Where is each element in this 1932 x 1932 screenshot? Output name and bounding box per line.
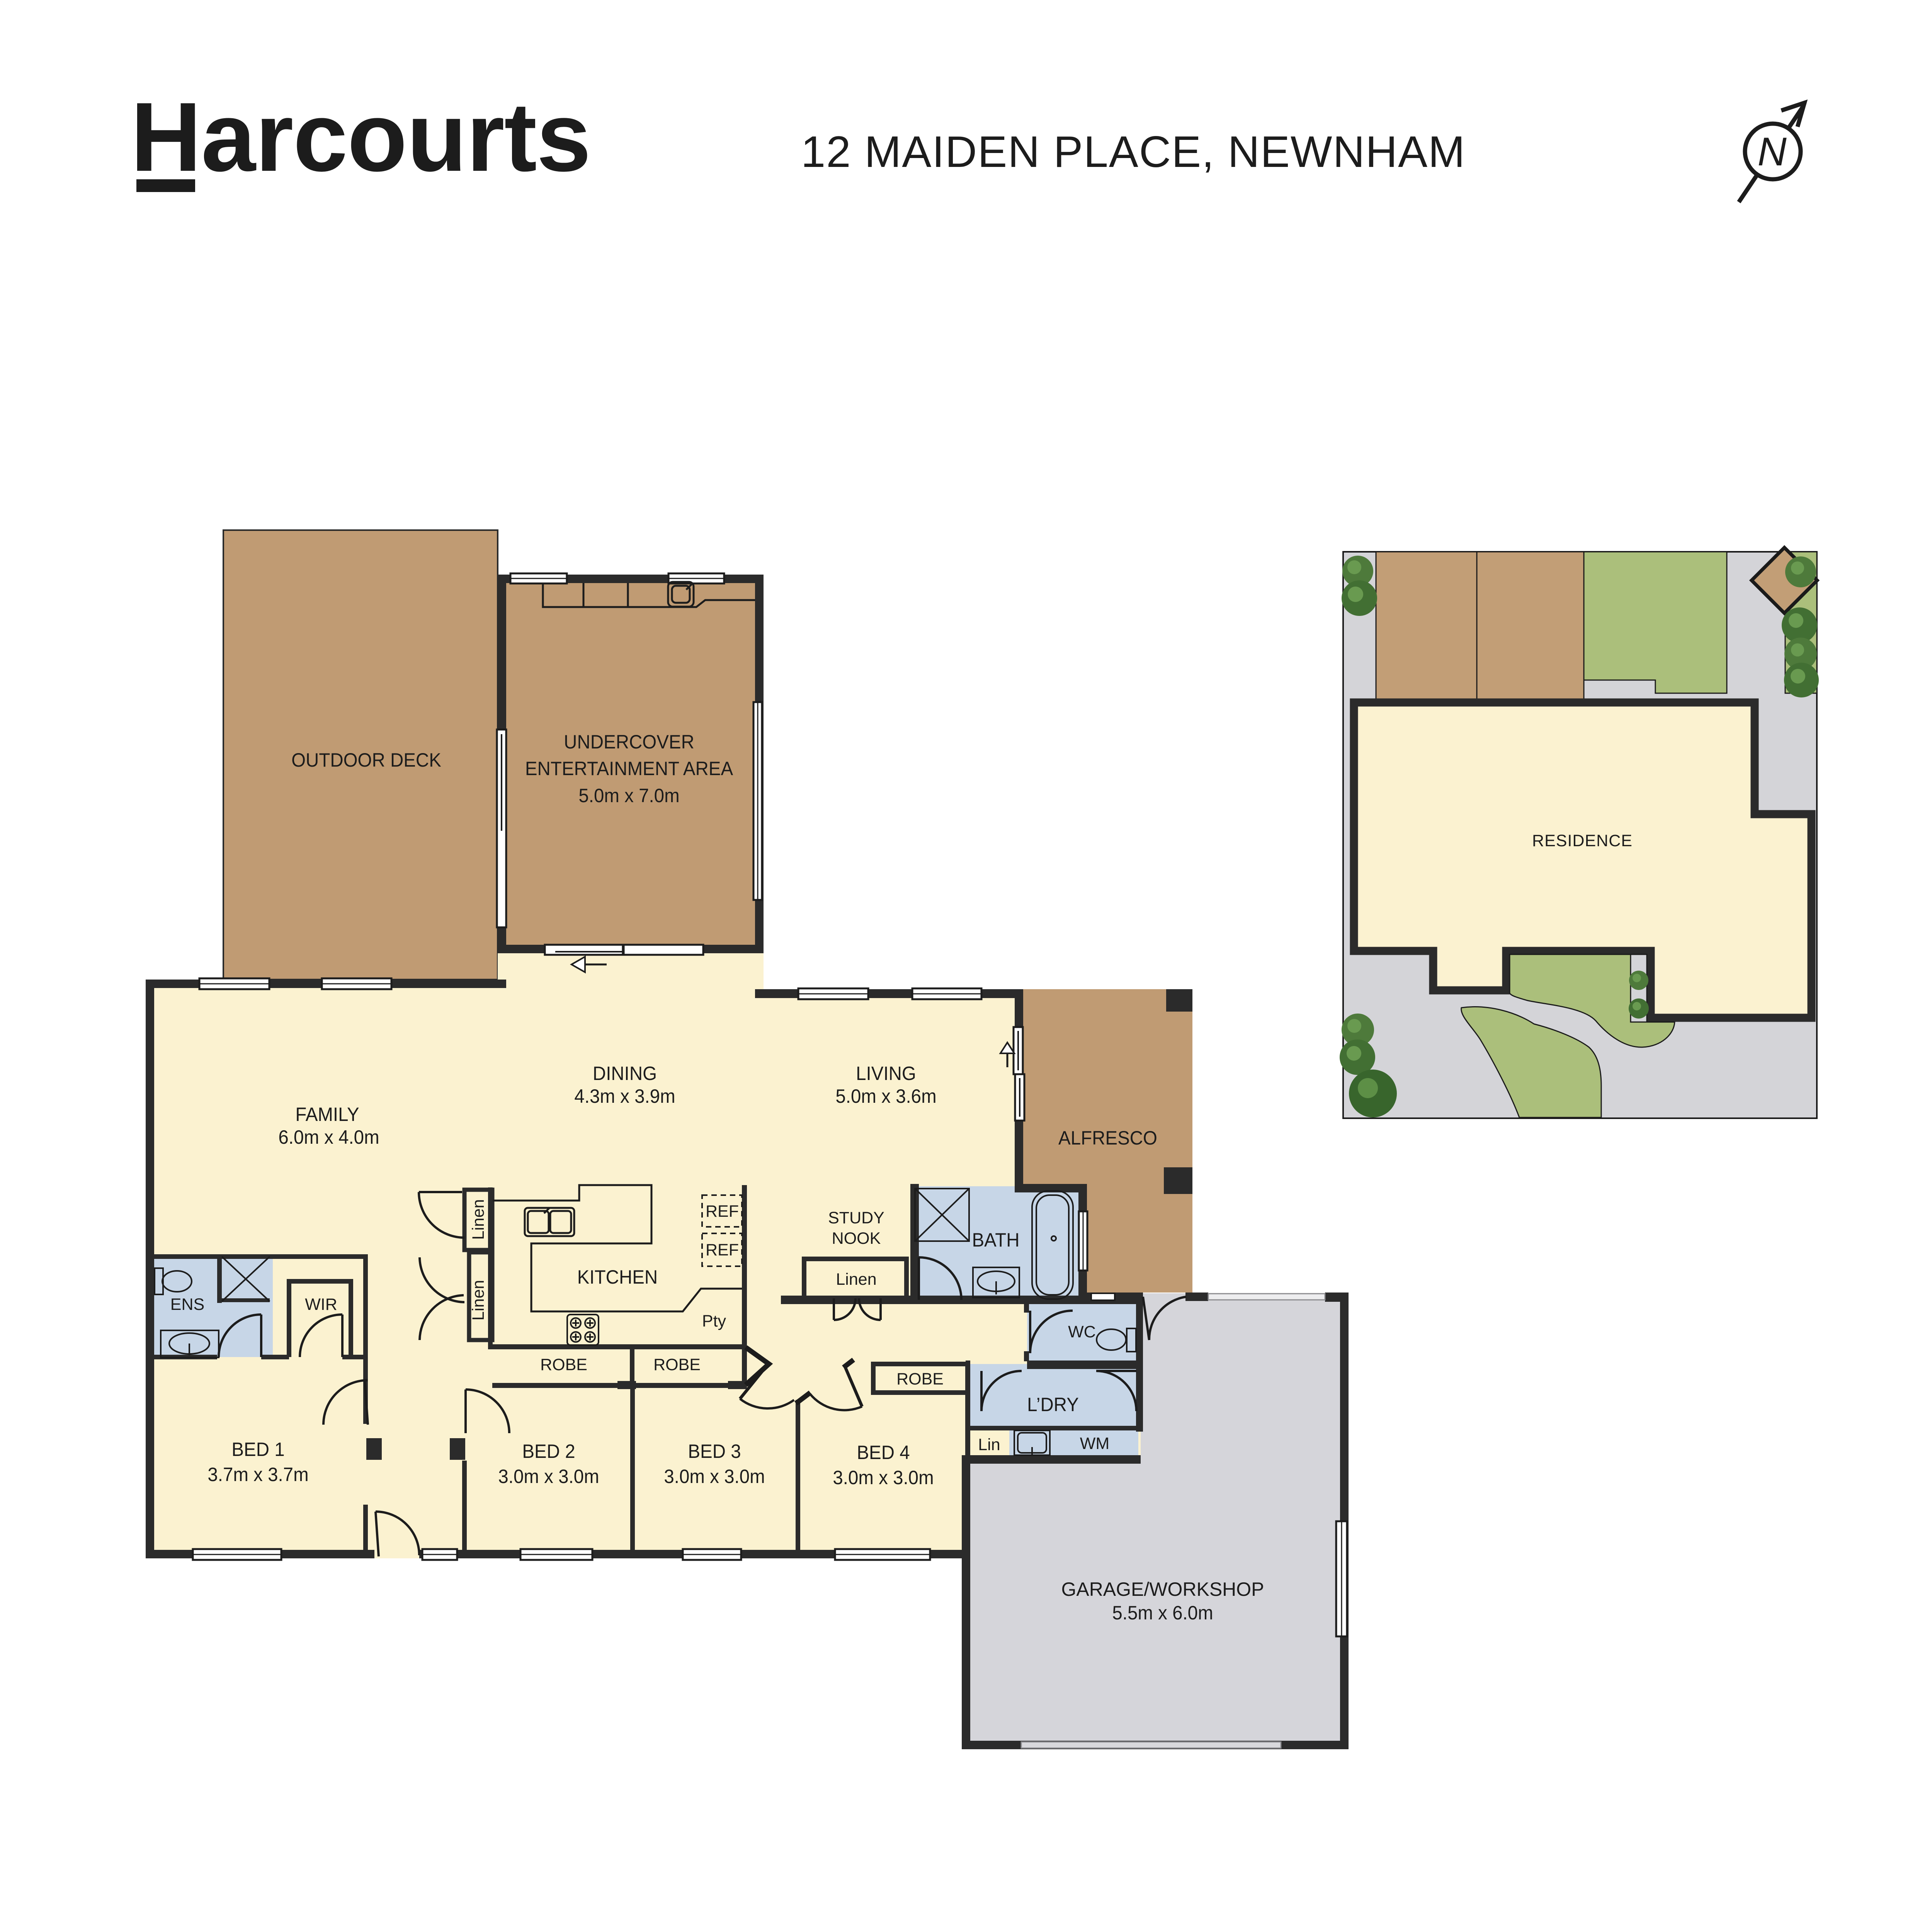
svg-text:OUTDOOR DECK: OUTDOOR DECK [291, 750, 441, 771]
svg-text:NOOK: NOOK [832, 1229, 881, 1248]
svg-text:STUDY: STUDY [828, 1209, 884, 1227]
svg-text:GARAGE/WORKSHOP: GARAGE/WORKSHOP [1061, 1578, 1264, 1600]
svg-text:ROBE: ROBE [540, 1355, 587, 1374]
svg-text:Linen: Linen [836, 1270, 876, 1289]
svg-text:ROBE: ROBE [896, 1370, 944, 1388]
svg-text:RESIDENCE: RESIDENCE [1532, 832, 1633, 850]
svg-text:6.0m x 4.0m: 6.0m x 4.0m [278, 1127, 379, 1148]
svg-text:5.5m x 6.0m: 5.5m x 6.0m [1112, 1602, 1213, 1624]
svg-text:5.0m x 7.0m: 5.0m x 7.0m [578, 785, 679, 806]
svg-text:Linen: Linen [469, 1280, 488, 1320]
svg-text:12 MAIDEN PLACE, NEWNHAM: 12 MAIDEN PLACE, NEWNHAM [801, 128, 1466, 177]
svg-text:3.0m x 3.0m: 3.0m x 3.0m [833, 1467, 934, 1488]
svg-text:ENS: ENS [170, 1295, 204, 1314]
svg-text:ALFRESCO: ALFRESCO [1058, 1128, 1157, 1149]
svg-text:FAMILY: FAMILY [295, 1104, 359, 1125]
svg-text:3.0m x 3.0m: 3.0m x 3.0m [664, 1466, 765, 1487]
svg-text:BED 3: BED 3 [688, 1441, 741, 1462]
svg-text:REF: REF [706, 1202, 739, 1221]
svg-text:WM: WM [1080, 1434, 1109, 1453]
svg-text:3.7m x 3.7m: 3.7m x 3.7m [207, 1464, 308, 1485]
svg-text:KITCHEN: KITCHEN [577, 1267, 658, 1288]
svg-text:LIVING: LIVING [856, 1063, 916, 1084]
svg-text:BATH: BATH [972, 1230, 1019, 1251]
svg-text:BED 2: BED 2 [522, 1441, 575, 1462]
svg-text:Lin: Lin [978, 1435, 1000, 1454]
svg-text:N: N [1757, 129, 1787, 174]
svg-text:DINING: DINING [593, 1063, 657, 1084]
svg-text:REF: REF [706, 1241, 739, 1259]
svg-text:BED 4: BED 4 [857, 1442, 910, 1463]
svg-text:3.0m x 3.0m: 3.0m x 3.0m [498, 1466, 599, 1487]
svg-text:4.3m x 3.9m: 4.3m x 3.9m [574, 1086, 675, 1107]
svg-text:UNDERCOVER: UNDERCOVER [564, 731, 694, 753]
svg-text:L’DRY: L’DRY [1027, 1394, 1079, 1415]
svg-text:WC: WC [1068, 1323, 1096, 1341]
svg-text:ENTERTAINMENT AREA: ENTERTAINMENT AREA [525, 758, 733, 779]
svg-text:WIR: WIR [305, 1295, 337, 1314]
svg-text:Harcourts: Harcourts [131, 82, 591, 192]
svg-text:BED 1: BED 1 [231, 1439, 284, 1460]
svg-text:5.0m x 3.6m: 5.0m x 3.6m [835, 1086, 936, 1107]
svg-text:ROBE: ROBE [653, 1355, 701, 1374]
svg-text:Pty: Pty [702, 1312, 726, 1330]
svg-text:Linen: Linen [469, 1199, 488, 1240]
